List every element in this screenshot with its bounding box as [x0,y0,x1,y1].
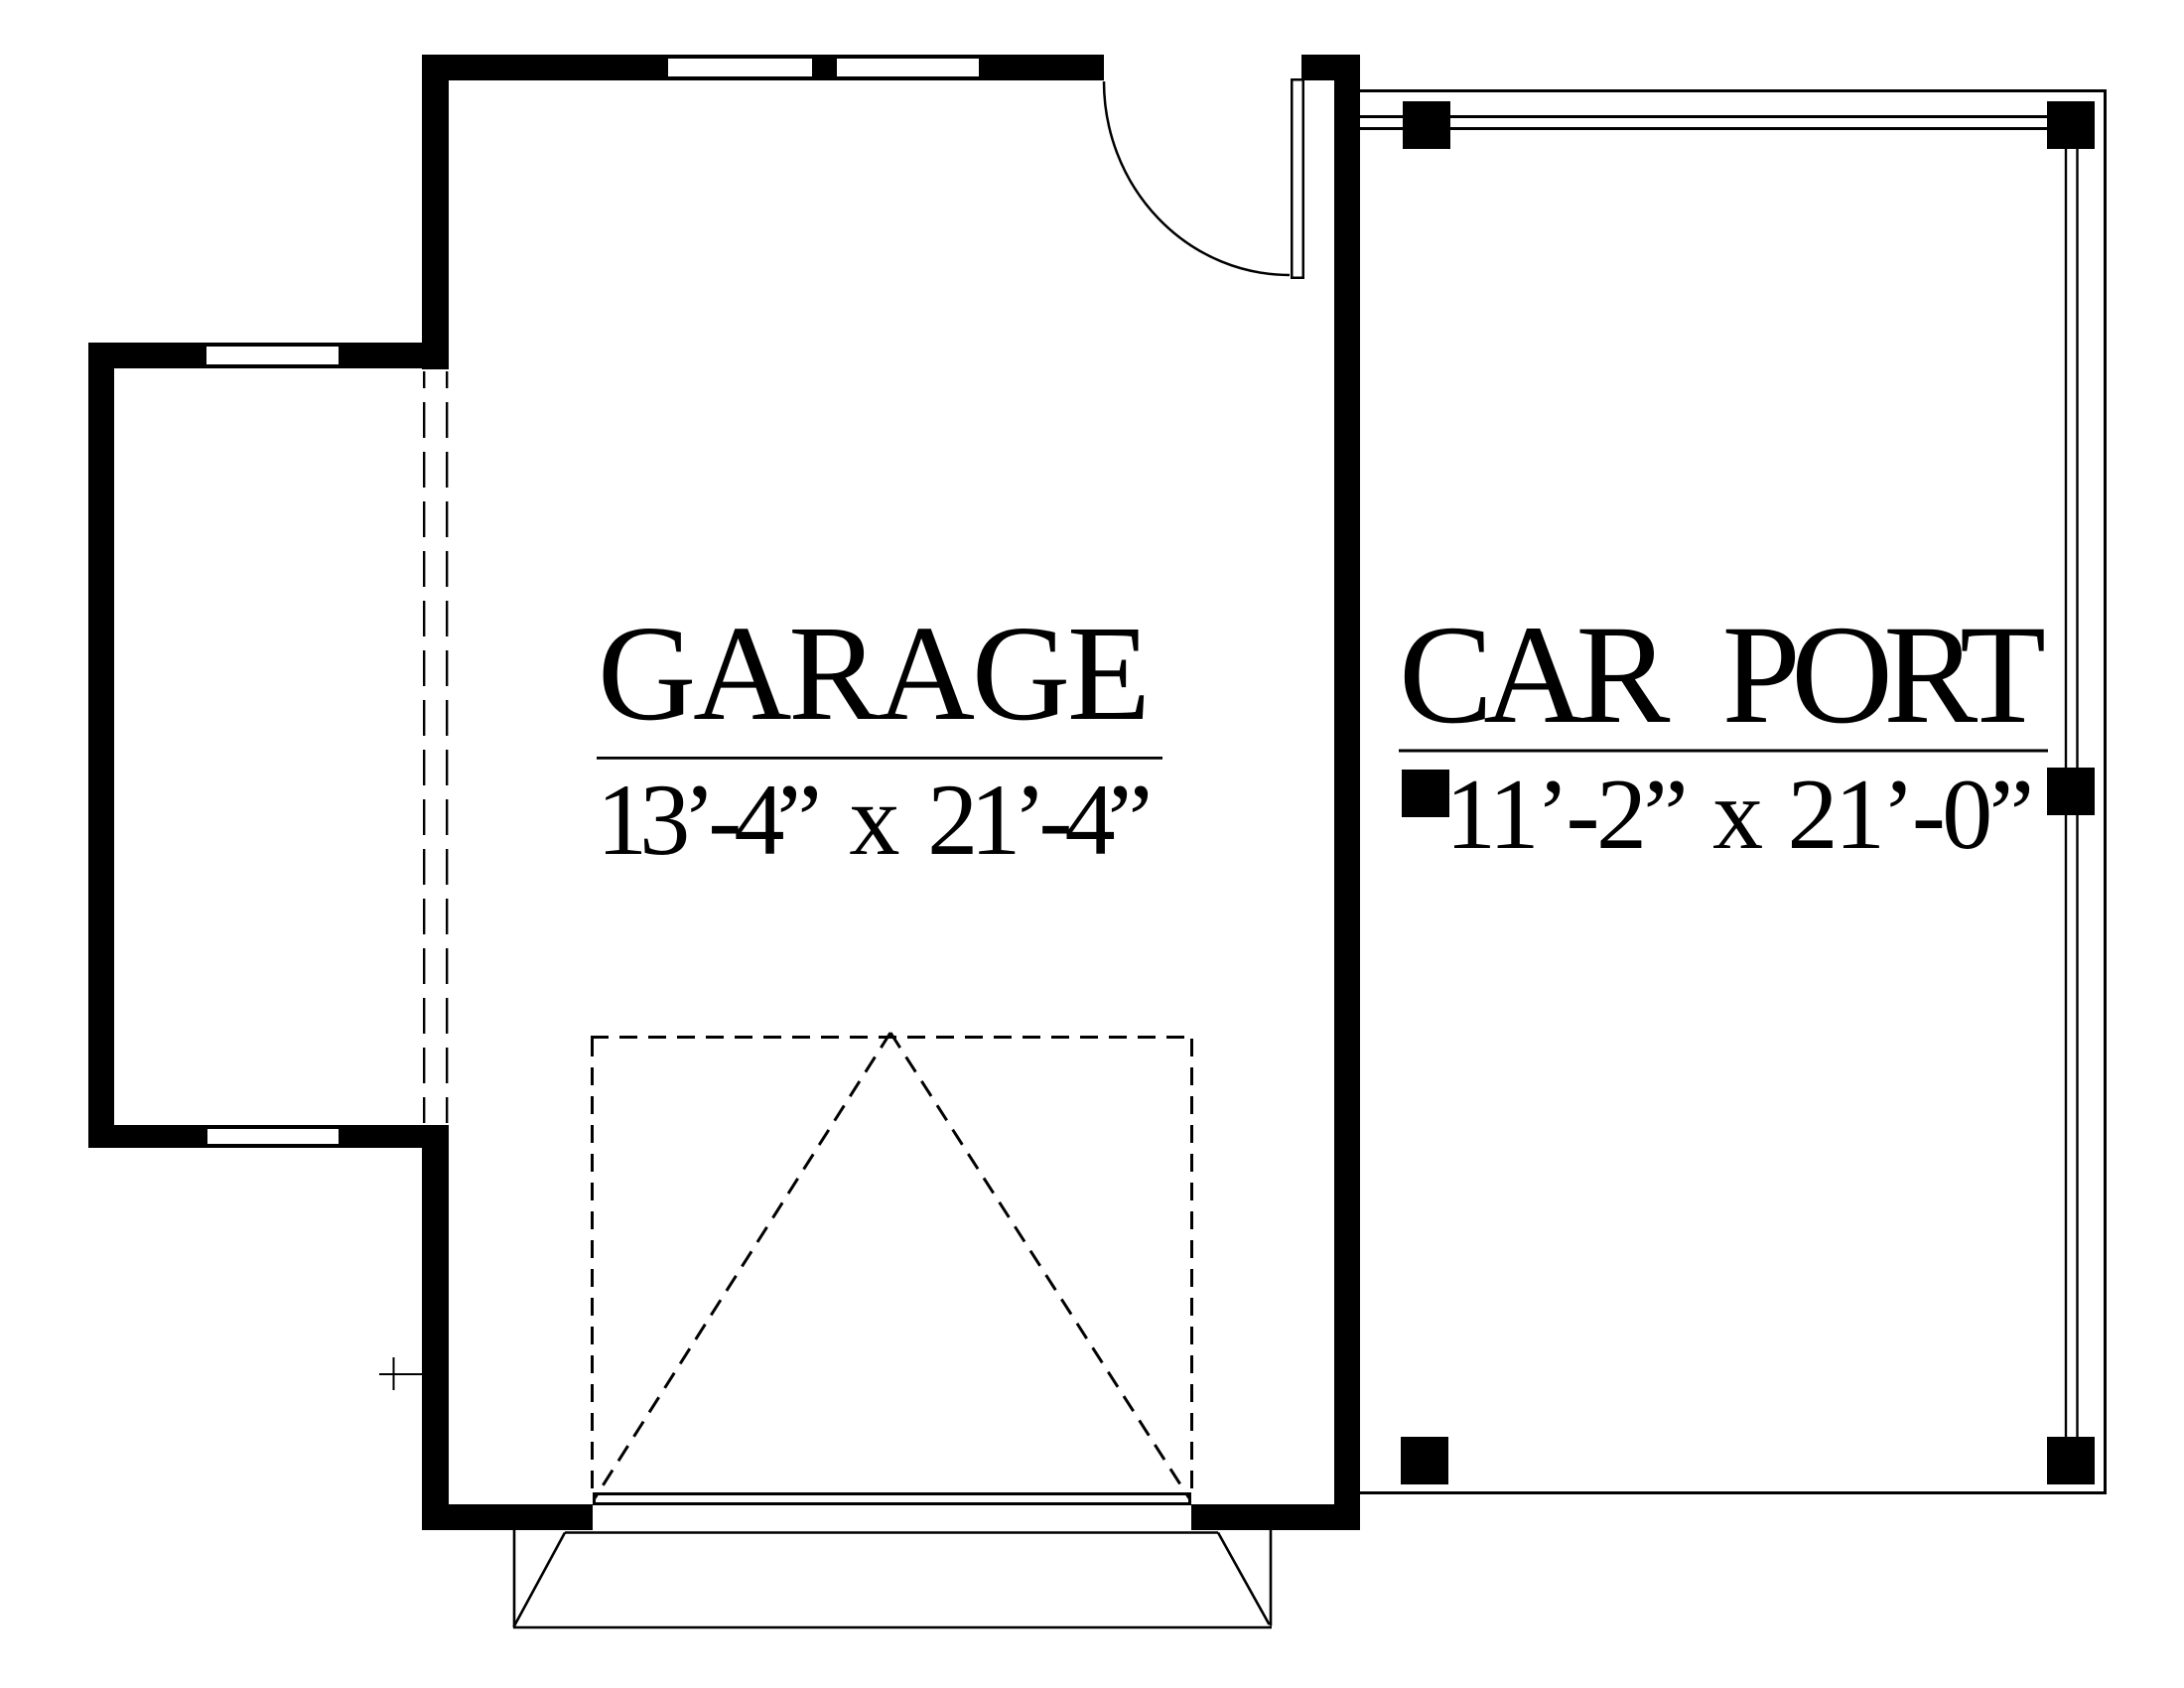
svg-text:GARAGE: GARAGE [598,597,1151,749]
svg-text:11’-2” x 21’-0”: 11’-2” x 21’-0” [1445,759,2034,871]
svg-text:13’-4” x 21’-4”: 13’-4” x 21’-4” [597,765,1153,877]
svg-text:CAR PORT: CAR PORT [1399,596,2046,753]
